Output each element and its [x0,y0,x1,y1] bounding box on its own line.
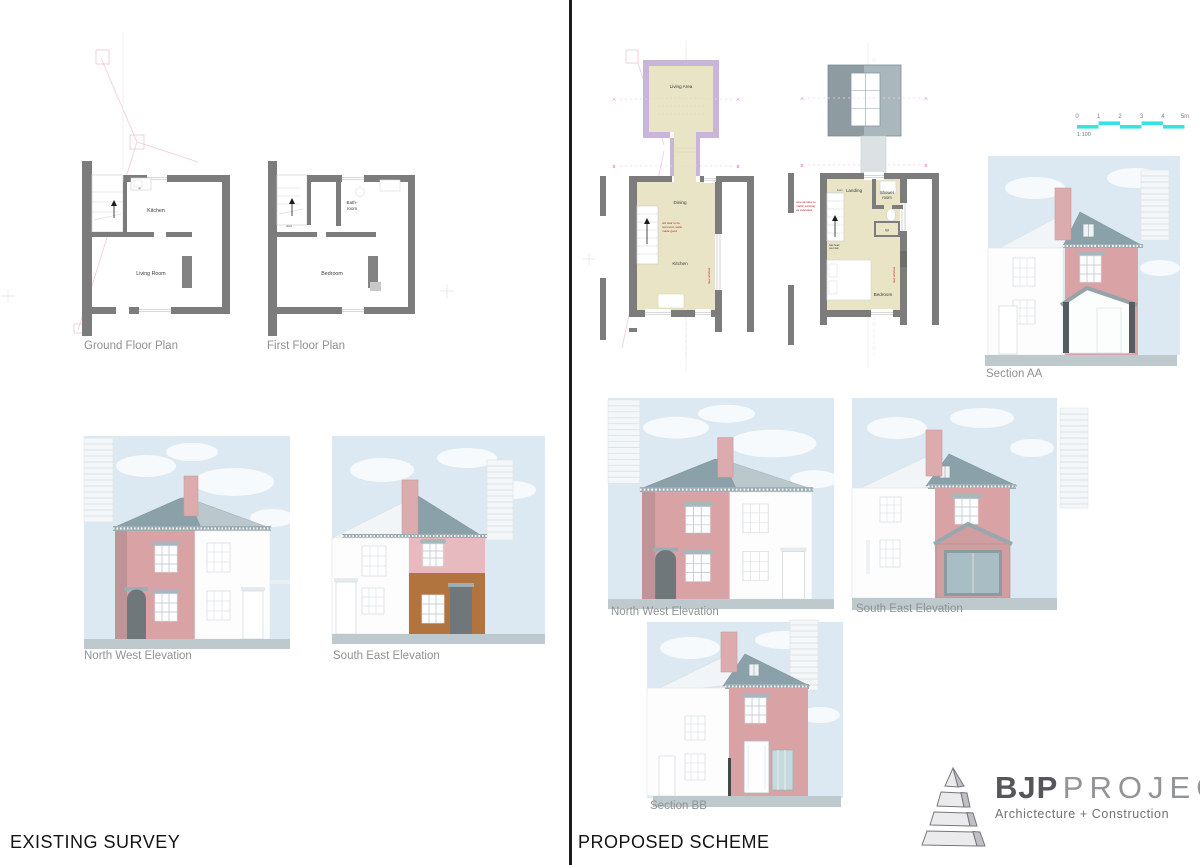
existing-ground-floor-title: Ground Floor Plan [84,340,178,352]
landing-note: linen [837,188,843,192]
scale-tick-0: 0 [1075,114,1079,120]
room-label-bedroom: Bedroom [321,271,343,277]
scale-tick-3: 3 [1140,114,1144,120]
proposed-first-floor-plan: A A B B linen Landing Shower room W [788,55,968,357]
proposed-section-bb-title: Section BB [650,800,707,812]
section-marker-a-right: A [924,96,928,101]
annotation-vertical: new window [892,266,896,283]
scale-bar: 0 1 2 3 4 5m 1:100 [1073,108,1197,138]
existing-se-elevation [332,430,548,652]
proposed-section-aa [985,148,1190,370]
section-marker-b-left: B [612,164,615,169]
logo-brand-light: PROJECTS [1063,770,1200,805]
proposed-se-elevation-title: South East Elevation [856,603,963,615]
existing-nw-elevation-title: North West Elevation [84,650,192,662]
annotation-line-3: as indicated [796,208,812,212]
annotation-vertical: new window [707,267,711,284]
room-label-living-room: Living Room [136,271,166,277]
proposed-section-bb [645,620,885,810]
existing-se-elevation-title: South East Elevation [333,650,440,662]
room-label-kitchen: Kitchen [672,261,688,266]
scale-tick-2: 2 [1118,114,1122,120]
stair-note-2: over stair [829,247,839,250]
panel-divider [569,0,572,865]
scale-tick-1: 1 [1097,114,1101,120]
logo: BJP PROJECTS Archictecture + Constructio… [903,762,1195,854]
scale-tick-4: 4 [1161,114,1165,120]
room-label-wardrobe: W [885,228,889,233]
scale-ratio: 1:100 [1077,132,1091,138]
room-label-dining: Dining [673,200,686,205]
existing-first-floor-plan: down Bath- room Bedroom [262,148,422,362]
room-label-bedroom: Bedroom [874,292,893,297]
section-marker-a-right: A [736,97,740,102]
section-marker-b-left: B [800,163,803,168]
annotation-line-3: made good [662,229,677,233]
proposed-scheme-title: PROPOSED SCHEME [578,832,770,853]
proposed-nw-elevation-title: North West Elevation [611,606,719,618]
room-label-bath-1: Bath- [347,200,358,205]
logo-brand-bold: BJP [995,770,1058,805]
room-label-kitchen: Kitchen [147,208,165,214]
pyramid-logo-icon [903,762,993,854]
existing-survey-title: EXISTING SURVEY [10,832,180,853]
room-label-bath-2: room [347,206,358,211]
logo-brand: BJP PROJECTS [995,770,1200,806]
existing-nw-elevation [84,430,300,652]
logo-tagline: Archictecture + Construction [995,807,1200,821]
proposed-nw-elevation [608,392,845,612]
proposed-ground-floor-plan: Living Area A A B B Dining Kitchen old s… [600,48,780,360]
proposed-se-elevation [852,392,1089,612]
room-label-shower-2: room [882,195,892,200]
existing-ground-floor-plan: up Kitchen Living Room [78,148,238,362]
drawing-sheet: up Kitchen Living Room Ground Floor Plan… [0,0,1200,865]
existing-first-floor-title: First Floor Plan [267,340,345,352]
stair-note: down [286,224,293,228]
scale-tick-5: 5m [1181,114,1189,120]
room-label-landing: Landing [846,188,863,193]
room-label-living-area: Living Area [670,84,693,89]
section-marker-a-left: A [612,97,616,102]
proposed-section-aa-title: Section AA [986,368,1042,380]
section-marker-b-right: B [736,164,739,169]
section-marker-b-right: B [924,163,927,168]
section-marker-a-left: A [800,96,804,101]
